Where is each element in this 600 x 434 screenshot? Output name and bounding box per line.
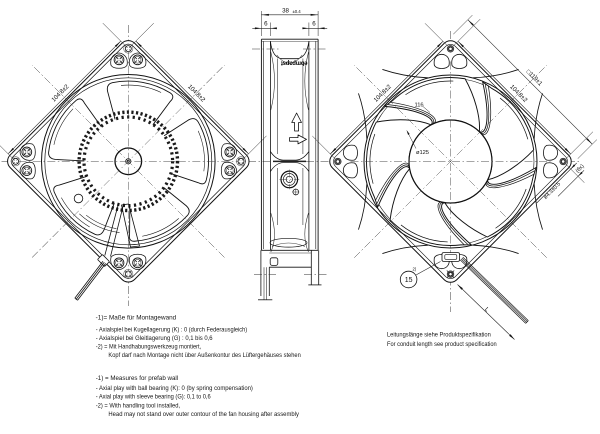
svg-text:-1)= Maße für Montagewand: -1)= Maße für Montagewand — [96, 314, 177, 321]
svg-text:- Axialspiel bei Gleitlagerung: - Axialspiel bei Gleitlagerung (G) : 0,1… — [96, 335, 213, 342]
svg-text:For conduit length see product: For conduit length see product specifica… — [387, 341, 497, 348]
svg-text:Head may not stand over outer: Head may not stand over outer contour of… — [108, 411, 299, 418]
svg-text:116: 116 — [415, 103, 424, 109]
svg-text:ebmpapst: ebmpapst — [280, 59, 308, 66]
svg-text:±0.4: ±0.4 — [293, 9, 302, 14]
svg-text:15: 15 — [405, 277, 413, 284]
svg-text:ø125: ø125 — [416, 150, 429, 156]
svg-text:Kopf darf nach Montage nicht ü: Kopf darf nach Montage nicht über Außenk… — [108, 352, 301, 359]
svg-text:- Axial play with ball bearing: - Axial play with ball bearing (K): 0 (b… — [96, 385, 253, 392]
svg-text:38: 38 — [282, 7, 289, 14]
svg-text:- Axialspiel bei Kugellagerung: - Axialspiel bei Kugellagerung (K) : 0 (… — [96, 326, 248, 333]
svg-text:-2) = Mit Handhabungswerkzeug: -2) = Mit Handhabungswerkzeug montiert, — [96, 343, 202, 350]
svg-text:-2) = With handling tool insta: -2) = With handling tool installed, — [96, 402, 181, 409]
svg-text:- Axial play with sleeve beari: - Axial play with sleeve bearing (G): 0,… — [96, 394, 211, 401]
svg-text:Leitungslänge siehe Produktspe: Leitungslänge siehe Produktspezifikation — [387, 331, 491, 338]
svg-text:-1) = Measures for prefab wall: -1) = Measures for prefab wall — [96, 375, 179, 382]
